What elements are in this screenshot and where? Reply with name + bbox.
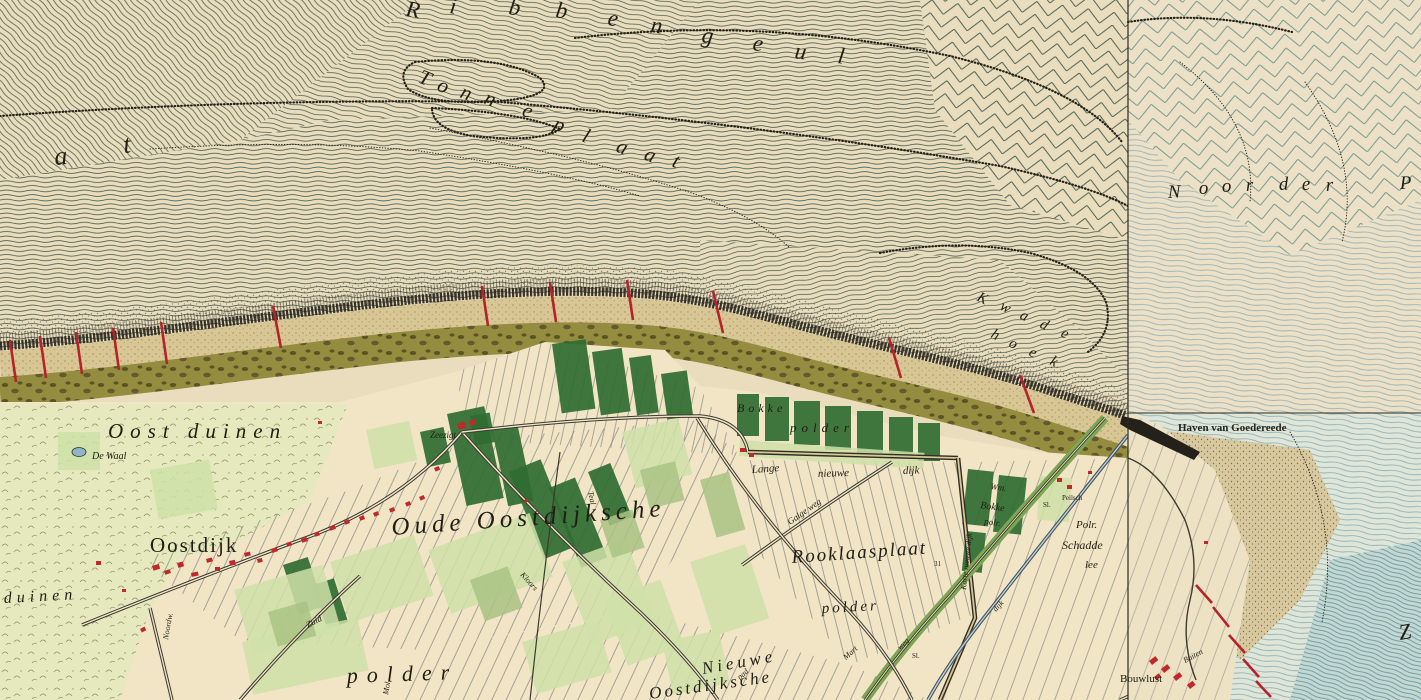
building: [1067, 485, 1072, 489]
building: [740, 448, 746, 452]
map-label: Sl.: [1043, 501, 1051, 509]
map-label: polder: [344, 659, 458, 688]
map-label: Polr.: [1075, 519, 1097, 531]
field-parcel: [150, 460, 218, 520]
building: [1057, 478, 1062, 482]
map-label: Bokke: [737, 401, 786, 415]
building: [122, 589, 126, 592]
map-label: nieuwe: [818, 467, 850, 480]
sea-label-letter: o: [1221, 176, 1231, 197]
map-label: polder: [789, 420, 854, 435]
field-parcel: [857, 411, 883, 453]
map-label: Haven van Goedereede: [1178, 422, 1287, 434]
map-label: Lange: [750, 462, 779, 476]
map-label: polder: [820, 598, 879, 617]
building: [1204, 541, 1208, 544]
sea-label-letter: r: [1325, 175, 1334, 196]
sea-label-letter: N: [1166, 182, 1182, 204]
sea-label-letter: r: [1245, 175, 1254, 196]
sea-label-letter: o: [1198, 178, 1208, 199]
map-label: Schadde: [1062, 538, 1103, 552]
map-label: De Waal: [91, 451, 127, 462]
historical-map-canvas: RibbengeulTonneplaatatNoorderPKwadehoekO…: [0, 0, 1421, 700]
map-label: Zeezigt: [430, 430, 456, 440]
map-label: Bouwlust: [1120, 673, 1162, 685]
building: [96, 561, 101, 565]
sea-label-letter: a: [53, 141, 68, 171]
map-label: Peilsch: [1062, 494, 1083, 502]
de-waal-pond: [72, 448, 86, 457]
map-label: 31: [934, 560, 942, 568]
sea-label-letter: P: [1398, 173, 1412, 194]
sea-label-letter: d: [1278, 174, 1289, 195]
map-label: Oostdijk: [150, 533, 238, 557]
building: [215, 567, 220, 571]
right-sheet: [1120, 0, 1421, 700]
map-svg: RibbengeulTonneplaatatNoorderPKwadehoekO…: [0, 0, 1421, 700]
building: [318, 421, 322, 424]
sea-label-letter: e: [1301, 174, 1310, 195]
map-label: dijk: [903, 464, 921, 477]
map-label: Oost duinen: [108, 419, 287, 443]
map-label: lee: [1085, 559, 1098, 571]
building: [1088, 471, 1092, 474]
building: [749, 453, 754, 457]
map-label: Sl.: [912, 652, 920, 660]
